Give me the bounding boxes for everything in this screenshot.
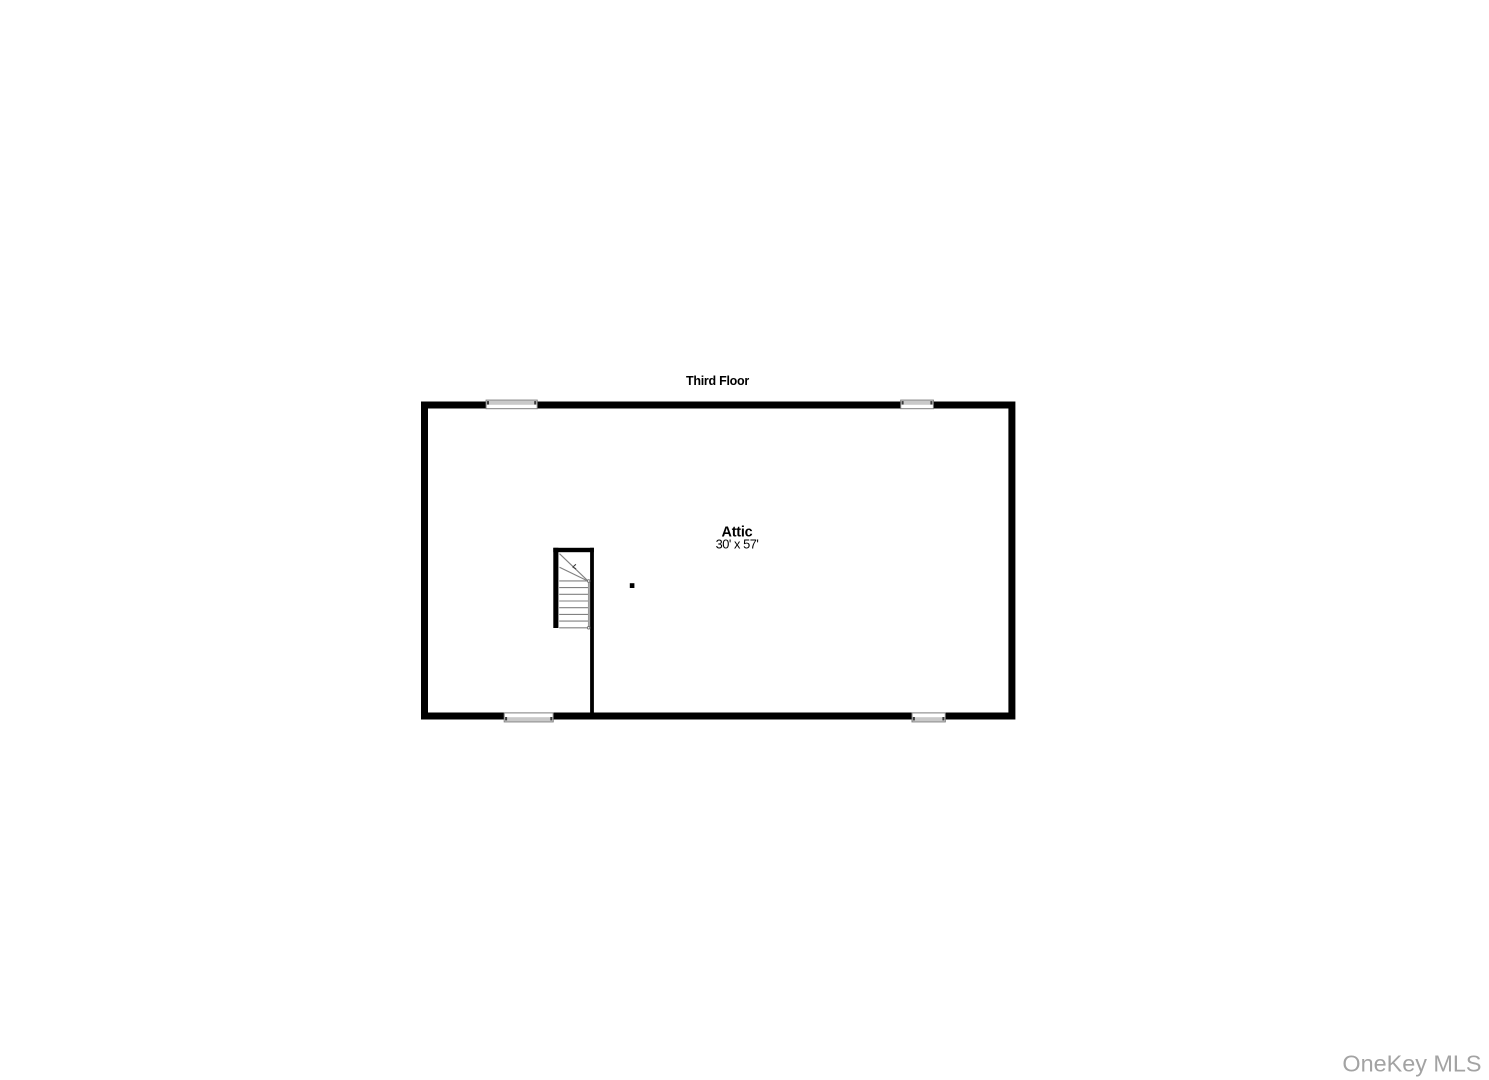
svg-text:OneKey MLS: OneKey MLS [1342,1051,1481,1077]
svg-text:Third Floor: Third Floor [686,374,749,388]
svg-text:30' x 57': 30' x 57' [716,537,759,552]
